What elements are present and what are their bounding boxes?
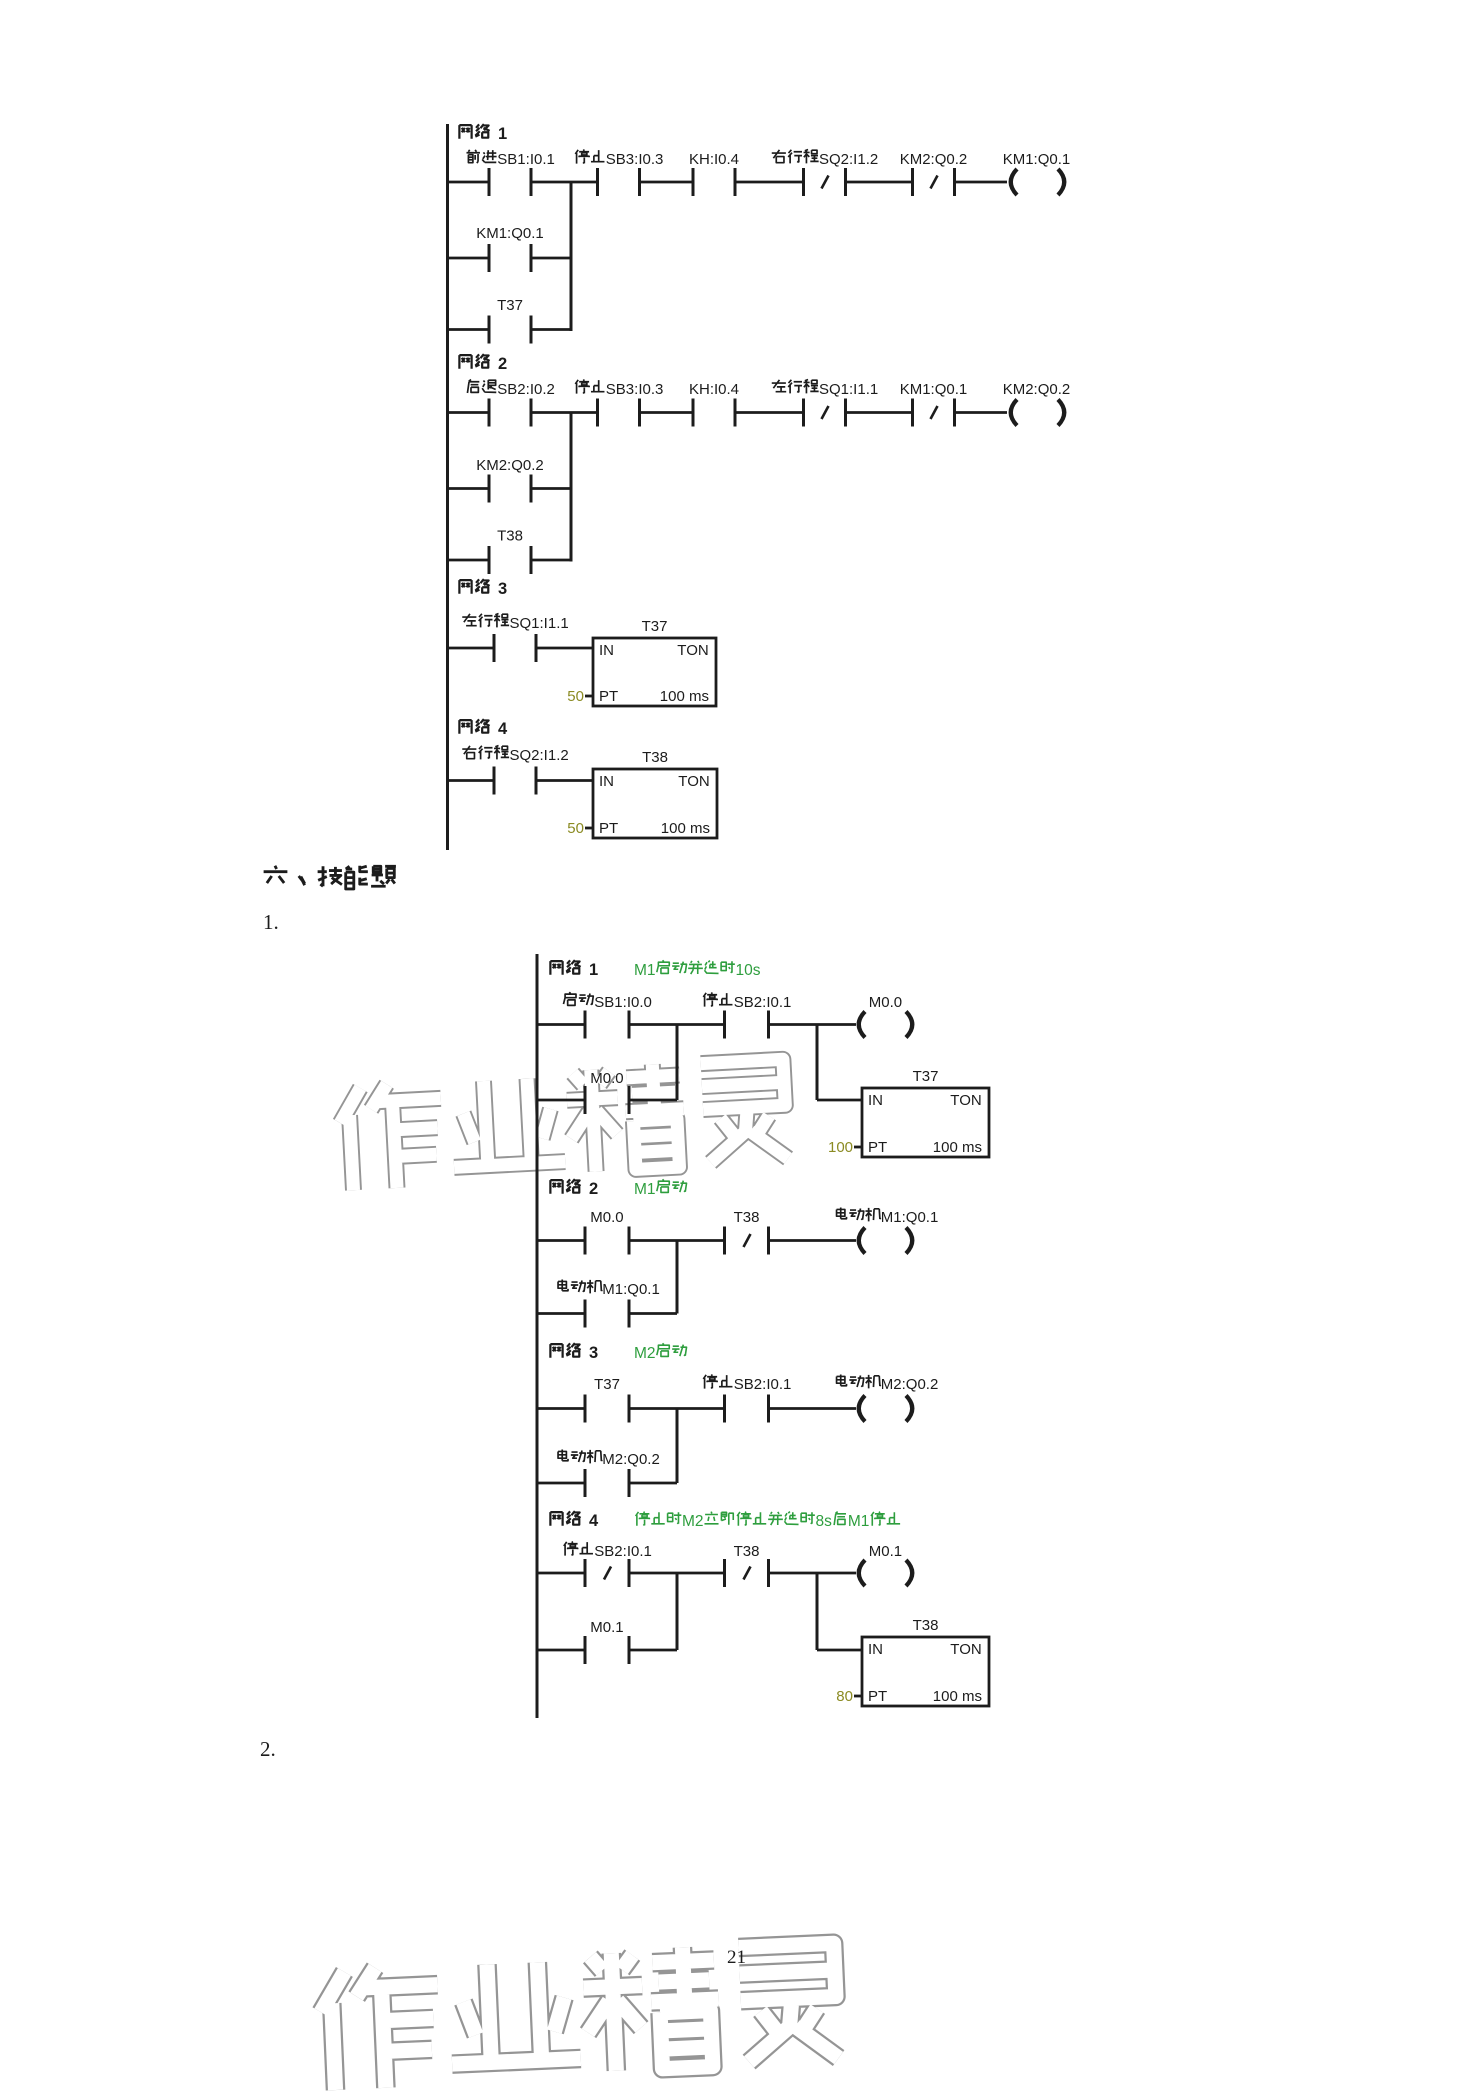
- svg-text:PT: PT: [868, 1688, 887, 1705]
- svg-text:M2:Q0.2: M2:Q0.2: [602, 1451, 660, 1468]
- svg-text:M1: M1: [848, 1513, 870, 1530]
- svg-text:M0.1: M0.1: [590, 1619, 623, 1636]
- svg-text:SB2:I0.1: SB2:I0.1: [734, 1376, 792, 1393]
- svg-text:KM1:Q0.1: KM1:Q0.1: [476, 225, 544, 242]
- svg-text:T37: T37: [642, 618, 668, 635]
- svg-text:100 ms: 100 ms: [933, 1688, 982, 1705]
- svg-text:50: 50: [567, 688, 584, 705]
- svg-text:80: 80: [836, 1688, 853, 1705]
- svg-text:2: 2: [589, 1180, 598, 1198]
- svg-text:SB2:I0.1: SB2:I0.1: [734, 994, 792, 1011]
- svg-text:T38: T38: [642, 749, 668, 766]
- svg-text:KH:I0.4: KH:I0.4: [689, 381, 739, 398]
- svg-text:M0.0: M0.0: [590, 1070, 623, 1087]
- svg-text:M1: M1: [634, 1181, 656, 1198]
- svg-text:T38: T38: [913, 1617, 939, 1634]
- svg-text:KM2:Q0.2: KM2:Q0.2: [1003, 381, 1071, 398]
- svg-text:IN: IN: [868, 1092, 883, 1109]
- svg-text:SB3:I0.3: SB3:I0.3: [606, 151, 664, 168]
- svg-text:10s: 10s: [736, 962, 761, 979]
- svg-text:M1:Q0.1: M1:Q0.1: [602, 1281, 660, 1298]
- svg-text:PT: PT: [599, 820, 618, 837]
- svg-text:SQ1:I1.1: SQ1:I1.1: [819, 381, 878, 398]
- svg-text:8s: 8s: [816, 1513, 833, 1530]
- svg-text:100: 100: [828, 1139, 853, 1156]
- svg-text:M2: M2: [634, 1345, 656, 1362]
- svg-text:KM1:Q0.1: KM1:Q0.1: [1003, 151, 1071, 168]
- svg-text:1.: 1.: [263, 910, 279, 934]
- svg-text:4: 4: [498, 720, 508, 738]
- svg-text:M0.0: M0.0: [869, 994, 902, 1011]
- svg-text:SB2:I0.1: SB2:I0.1: [594, 1543, 652, 1560]
- svg-text:T38: T38: [497, 528, 523, 545]
- svg-text:T37: T37: [594, 1376, 620, 1393]
- svg-text:M1: M1: [634, 962, 656, 979]
- svg-text:T38: T38: [734, 1209, 760, 1226]
- svg-text:KM1:Q0.1: KM1:Q0.1: [900, 381, 968, 398]
- svg-text:M2: M2: [682, 1513, 704, 1530]
- svg-text:IN: IN: [599, 773, 614, 790]
- svg-text:TON: TON: [677, 642, 708, 659]
- svg-text:100 ms: 100 ms: [660, 688, 709, 705]
- svg-text:M1:Q0.1: M1:Q0.1: [881, 1209, 939, 1226]
- svg-text:4: 4: [589, 1512, 599, 1530]
- svg-text:2.: 2.: [260, 1737, 276, 1761]
- svg-text:M2:Q0.2: M2:Q0.2: [881, 1376, 939, 1393]
- svg-text:SB3:I0.3: SB3:I0.3: [606, 381, 664, 398]
- svg-text:100 ms: 100 ms: [933, 1139, 982, 1156]
- svg-text:TON: TON: [950, 1641, 981, 1658]
- svg-text:3: 3: [498, 580, 507, 598]
- svg-text:KM2:Q0.2: KM2:Q0.2: [476, 457, 544, 474]
- svg-text:3: 3: [589, 1344, 598, 1362]
- svg-text:TON: TON: [678, 773, 709, 790]
- svg-text:SQ1:I1.1: SQ1:I1.1: [510, 615, 569, 632]
- svg-text:T37: T37: [497, 297, 523, 314]
- svg-text:SB2:I0.2: SB2:I0.2: [497, 381, 555, 398]
- svg-text:50: 50: [567, 820, 584, 837]
- svg-text:100 ms: 100 ms: [661, 820, 710, 837]
- svg-text:M0.0: M0.0: [590, 1209, 623, 1226]
- svg-text:SQ2:I1.2: SQ2:I1.2: [819, 151, 878, 168]
- svg-text:KM2:Q0.2: KM2:Q0.2: [900, 151, 968, 168]
- svg-text:KH:I0.4: KH:I0.4: [689, 151, 739, 168]
- svg-text:2: 2: [498, 355, 507, 373]
- svg-text:IN: IN: [868, 1641, 883, 1658]
- svg-text:TON: TON: [950, 1092, 981, 1109]
- svg-text:T38: T38: [734, 1543, 760, 1560]
- svg-text:SB1:I0.1: SB1:I0.1: [497, 151, 555, 168]
- svg-text:PT: PT: [868, 1139, 887, 1156]
- svg-text:IN: IN: [599, 642, 614, 659]
- svg-text:SQ2:I1.2: SQ2:I1.2: [510, 747, 569, 764]
- svg-text:SB1:I0.0: SB1:I0.0: [594, 994, 652, 1011]
- svg-text:1: 1: [498, 125, 507, 143]
- svg-text:M0.1: M0.1: [869, 1543, 902, 1560]
- svg-text:PT: PT: [599, 688, 618, 705]
- svg-text:21: 21: [727, 1947, 746, 1968]
- svg-text:1: 1: [589, 961, 598, 979]
- svg-text:T37: T37: [913, 1068, 939, 1085]
